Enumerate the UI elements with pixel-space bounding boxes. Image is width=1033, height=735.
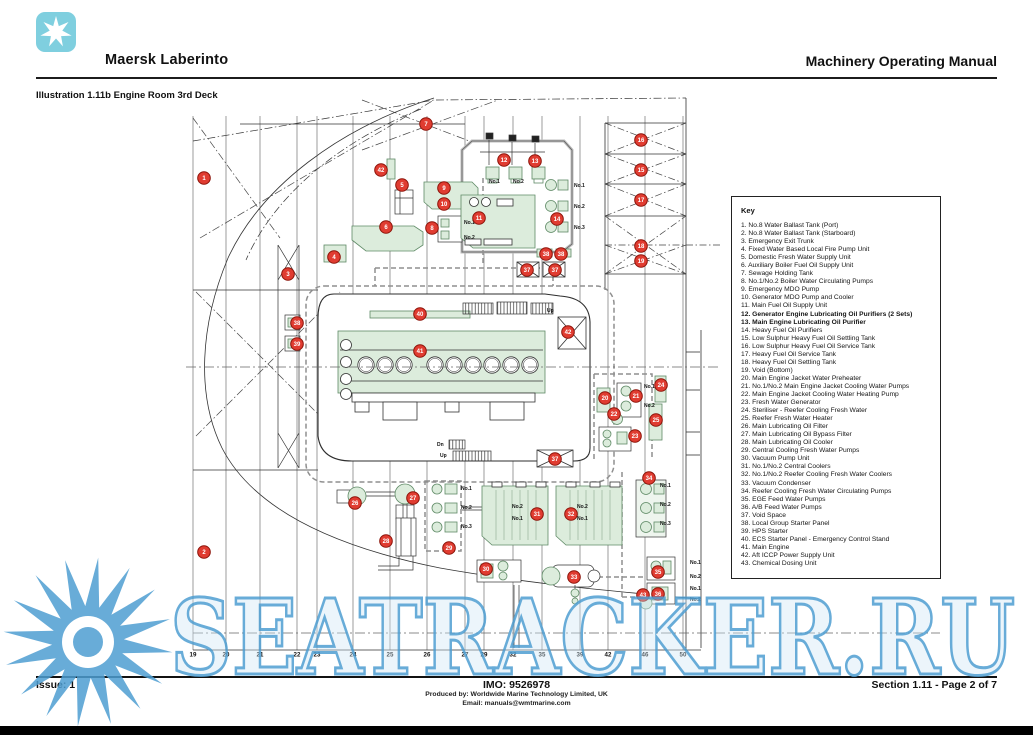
svg-text:12: 12: [501, 158, 508, 164]
marker-39: 39: [291, 338, 304, 351]
svg-text:42: 42: [565, 330, 572, 336]
marker-38: 38: [540, 248, 553, 261]
marker-8: 8: [426, 222, 439, 235]
footer-section-page: Section 1.11 - Page 2 of 7: [872, 679, 997, 691]
equipment-label: No.2: [577, 504, 588, 510]
equipment-label: No.1: [461, 486, 472, 492]
key-item-17: 17. Heavy Fuel Oil Service Tank: [741, 351, 936, 359]
svg-text:38: 38: [543, 252, 550, 258]
bottom-black-bar: [0, 726, 1033, 735]
marker-5: 5: [396, 179, 409, 192]
key-item-42: 42. Aft ICCP Power Supply Unit: [741, 552, 936, 560]
marker-32: 32: [565, 508, 578, 521]
key-item-43: 43. Chemical Dosing Unit: [741, 560, 936, 568]
key-item-31: 31. No.1/No.2 Central Coolers: [741, 463, 936, 471]
equipment-label: No.1: [489, 179, 500, 185]
key-item-18: 18. Heavy Fuel Oil Settling Tank: [741, 359, 936, 367]
svg-text:10: 10: [441, 202, 448, 208]
key-item-25: 25. Reefer Fresh Water Heater: [741, 415, 936, 423]
marker-42: 42: [375, 164, 388, 177]
equipment-label: No.2: [690, 597, 701, 603]
key-item-22: 22. Main Engine Jacket Cooling Water Hea…: [741, 391, 936, 399]
svg-text:16: 16: [638, 138, 645, 144]
marker-4: 4: [328, 251, 341, 264]
key-item-10: 10. Generator MDO Pump and Cooler: [741, 294, 936, 302]
svg-text:35: 35: [655, 570, 662, 576]
marker-24: 24: [655, 379, 668, 392]
svg-text:43: 43: [640, 593, 647, 599]
key-item-26: 26. Main Lubricating Oil Filter: [741, 423, 936, 431]
marker-20: 20: [599, 392, 612, 405]
marker-29: 29: [443, 542, 456, 555]
svg-text:39: 39: [294, 342, 301, 348]
frame-number: 23: [314, 652, 321, 659]
equipment-label: No.2: [574, 204, 585, 210]
marker-15: 15: [635, 164, 648, 177]
marker-33: 33: [568, 571, 581, 584]
equipment-label: No.1: [644, 384, 655, 390]
frame-number: 46: [642, 652, 649, 659]
key-item-39: 39. HPS Starter: [741, 528, 936, 536]
svg-text:18: 18: [638, 244, 645, 250]
key-item-1: 1. No.8 Water Ballast Tank (Port): [741, 222, 936, 230]
marker-7: 7: [420, 118, 433, 131]
svg-text:13: 13: [532, 159, 539, 165]
marker-3: 3: [282, 268, 295, 281]
marker-17: 17: [635, 194, 648, 207]
svg-text:33: 33: [571, 575, 578, 581]
marker-22: 22: [608, 408, 621, 421]
marker-28: 28: [380, 535, 393, 548]
key-item-34: 34. Reefer Cooling Fresh Water Circulati…: [741, 488, 936, 496]
equipment-label: Up: [547, 308, 554, 314]
svg-text:38: 38: [294, 321, 301, 327]
marker-25: 25: [650, 414, 663, 427]
equipment-label: No.2: [644, 403, 655, 409]
hfo-purifier: [546, 201, 557, 212]
svg-text:21: 21: [633, 394, 640, 400]
hfo-purifier: [546, 180, 557, 191]
equipment-label: No.2: [513, 179, 524, 185]
key-item-5: 5. Domestic Fresh Water Supply Unit: [741, 254, 936, 262]
key-item-37: 37. Void Space: [741, 512, 936, 520]
key-item-32: 32. No.1/No.2 Reefer Cooling Fresh Water…: [741, 471, 936, 479]
key-item-24: 24. Steriliser - Reefer Cooling Fresh Wa…: [741, 407, 936, 415]
svg-text:25: 25: [653, 418, 660, 424]
svg-text:28: 28: [383, 539, 390, 545]
frame-number: 19: [190, 652, 197, 659]
iccp-unit: [387, 159, 395, 179]
frame-number: 35: [539, 652, 546, 659]
key-item-12: 12. Generator Engine Lubricating Oil Pur…: [741, 311, 936, 319]
key-item-15: 15. Low Sulphur Heavy Fuel Oil Settling …: [741, 335, 936, 343]
svg-text:32: 32: [568, 512, 575, 518]
marker-23: 23: [629, 430, 642, 443]
frame-number: 25: [387, 652, 394, 659]
equipment-label: No.2: [464, 235, 475, 241]
svg-text:37: 37: [524, 268, 531, 274]
marker-10: 10: [438, 198, 451, 211]
fuel-oil-tanks: [605, 123, 720, 290]
frame-number: 20: [223, 652, 230, 659]
svg-text:19: 19: [638, 259, 645, 265]
ge-lo-purifier: [509, 167, 522, 179]
key-panel: Key 1. No.8 Water Ballast Tank (Port)2. …: [731, 196, 941, 579]
marker-12: 12: [498, 154, 511, 167]
key-item-9: 9. Emergency MDO Pump: [741, 286, 936, 294]
equipment-label: No.2: [690, 574, 701, 580]
equipment-label: No.1: [577, 516, 588, 522]
frame-number: 39: [577, 652, 584, 659]
manual-page: Maersk Laberinto Machinery Operating Man…: [0, 0, 1033, 735]
marker-11: 11: [473, 212, 486, 225]
svg-text:30: 30: [483, 567, 490, 573]
marker-37: 37: [549, 453, 562, 466]
svg-text:17: 17: [638, 198, 645, 204]
svg-text:37: 37: [552, 457, 559, 463]
key-item-41: 41. Main Engine: [741, 544, 936, 552]
key-item-40: 40. ECS Starter Panel - Emergency Contro…: [741, 536, 936, 544]
marker-1: 1: [198, 172, 211, 185]
marker-37: 37: [549, 264, 562, 277]
svg-text:38: 38: [558, 252, 565, 258]
key-item-3: 3. Emergency Exit Trunk: [741, 238, 936, 246]
marker-38: 38: [291, 317, 304, 330]
key-item-2: 2. No.8 Water Ballast Tank (Starboard): [741, 230, 936, 238]
key-item-23: 23. Fresh Water Generator: [741, 399, 936, 407]
marker-40: 40: [414, 308, 427, 321]
key-item-20: 20. Main Engine Jacket Water Preheater: [741, 375, 936, 383]
marker-21: 21: [630, 390, 643, 403]
marker-38: 38: [555, 248, 568, 261]
equipment-label: No.2: [512, 504, 523, 510]
equipment-label: No.3: [574, 225, 585, 231]
svg-text:34: 34: [646, 476, 653, 482]
marker-30: 30: [480, 563, 493, 576]
equipment-label: No.1: [512, 516, 523, 522]
marker-26: 26: [349, 497, 362, 510]
domestic-fw-unit: [395, 190, 413, 214]
marker-36: 36: [652, 588, 665, 601]
frame-number: 42: [605, 652, 612, 659]
svg-text:27: 27: [410, 496, 417, 502]
equipment-label: No.2: [461, 505, 472, 511]
svg-text:11: 11: [476, 216, 483, 222]
frame-number: 21: [257, 652, 264, 659]
key-item-6: 6. Auxiliary Boiler Fuel Oil Supply Unit: [741, 262, 936, 270]
marker-6: 6: [380, 221, 393, 234]
svg-text:41: 41: [417, 349, 424, 355]
marker-41: 41: [414, 345, 427, 358]
key-item-38: 38. Local Group Starter Panel: [741, 520, 936, 528]
svg-text:42: 42: [378, 168, 385, 174]
marker-13: 13: [529, 155, 542, 168]
svg-text:20: 20: [602, 396, 609, 402]
svg-text:24: 24: [658, 383, 665, 389]
frame-number: 26: [424, 652, 431, 659]
key-item-28: 28. Main Lubricating Oil Cooler: [741, 439, 936, 447]
frame-number: 32: [510, 652, 517, 659]
key-item-30: 30. Vacuum Pump Unit: [741, 455, 936, 463]
marker-42: 42: [562, 326, 575, 339]
equipment-label: No.3: [461, 524, 472, 530]
footer-rule: [36, 676, 997, 678]
key-item-11: 11. Main Fuel Oil Supply Unit: [741, 302, 936, 310]
key-item-21: 21. No.1/No.2 Main Engine Jacket Cooling…: [741, 383, 936, 391]
key-item-13: 13. Main Engine Lubricating Oil Purifier: [741, 319, 936, 327]
frame-number: 24: [350, 652, 357, 659]
frame-number: 22: [294, 652, 301, 659]
footer-produced-by: Produced by: Worldwide Marine Technology…: [0, 691, 1033, 698]
marker-34: 34: [643, 472, 656, 485]
engine-cylinders: [358, 357, 538, 373]
equipment-label: No.1: [574, 183, 585, 189]
svg-text:29: 29: [446, 546, 453, 552]
key-list: 1. No.8 Water Ballast Tank (Port)2. No.8…: [732, 222, 940, 568]
marker-31: 31: [531, 508, 544, 521]
key-item-8: 8. No.1/No.2 Boiler Water Circulating Pu…: [741, 278, 936, 286]
svg-text:22: 22: [611, 412, 618, 418]
key-item-35: 35. EGE Feed Water Pumps: [741, 496, 936, 504]
svg-text:15: 15: [638, 168, 645, 174]
equipment-label: No.1: [690, 586, 701, 592]
marker-9: 9: [438, 182, 451, 195]
svg-text:26: 26: [352, 501, 359, 507]
equipment-label: Dn: [437, 442, 444, 448]
marker-35: 35: [652, 566, 665, 579]
equipment-label: Up: [440, 453, 447, 459]
marker-37: 37: [521, 264, 534, 277]
svg-text:36: 36: [655, 592, 662, 598]
key-item-33: 33. Vacuum Condenser: [741, 480, 936, 488]
key-item-4: 4. Fixed Water Based Local Fire Pump Uni…: [741, 246, 936, 254]
key-item-27: 27. Main Lubricating Oil Bypass Filter: [741, 431, 936, 439]
equipment-label: No.1: [690, 560, 701, 566]
key-item-7: 7. Sewage Holding Tank: [741, 270, 936, 278]
svg-text:14: 14: [554, 217, 561, 223]
svg-text:23: 23: [632, 434, 639, 440]
svg-text:31: 31: [534, 512, 541, 518]
key-title: Key: [741, 206, 940, 215]
marker-2: 2: [198, 546, 211, 559]
marker-16: 16: [635, 134, 648, 147]
marker-19: 19: [635, 255, 648, 268]
key-item-14: 14. Heavy Fuel Oil Purifiers: [741, 327, 936, 335]
footer-email: Email: manuals@wmtmarine.com: [0, 700, 1033, 707]
svg-text:37: 37: [552, 268, 559, 274]
key-item-29: 29. Central Cooling Fresh Water Pumps: [741, 447, 936, 455]
me-lo-purifier: [532, 167, 545, 179]
marker-14: 14: [551, 213, 564, 226]
marker-43: 43: [637, 589, 650, 602]
frame-number: 29: [481, 652, 488, 659]
key-item-36: 36. A/B Feed Water Pumps: [741, 504, 936, 512]
frame-number: 27: [462, 652, 469, 659]
marker-18: 18: [635, 240, 648, 253]
key-item-16: 16. Low Sulphur Heavy Fuel Oil Service T…: [741, 343, 936, 351]
frame-number: 50: [680, 652, 687, 659]
lube-oil-cooler: [396, 518, 416, 556]
key-item-19: 19. Void (Bottom): [741, 367, 936, 375]
equipment-label: No.2: [660, 502, 671, 508]
svg-text:40: 40: [417, 312, 424, 318]
equipment-label: No.1: [660, 483, 671, 489]
equipment-label: No.3: [660, 521, 671, 527]
ge-lo-purifier: [486, 167, 499, 179]
marker-27: 27: [407, 492, 420, 505]
